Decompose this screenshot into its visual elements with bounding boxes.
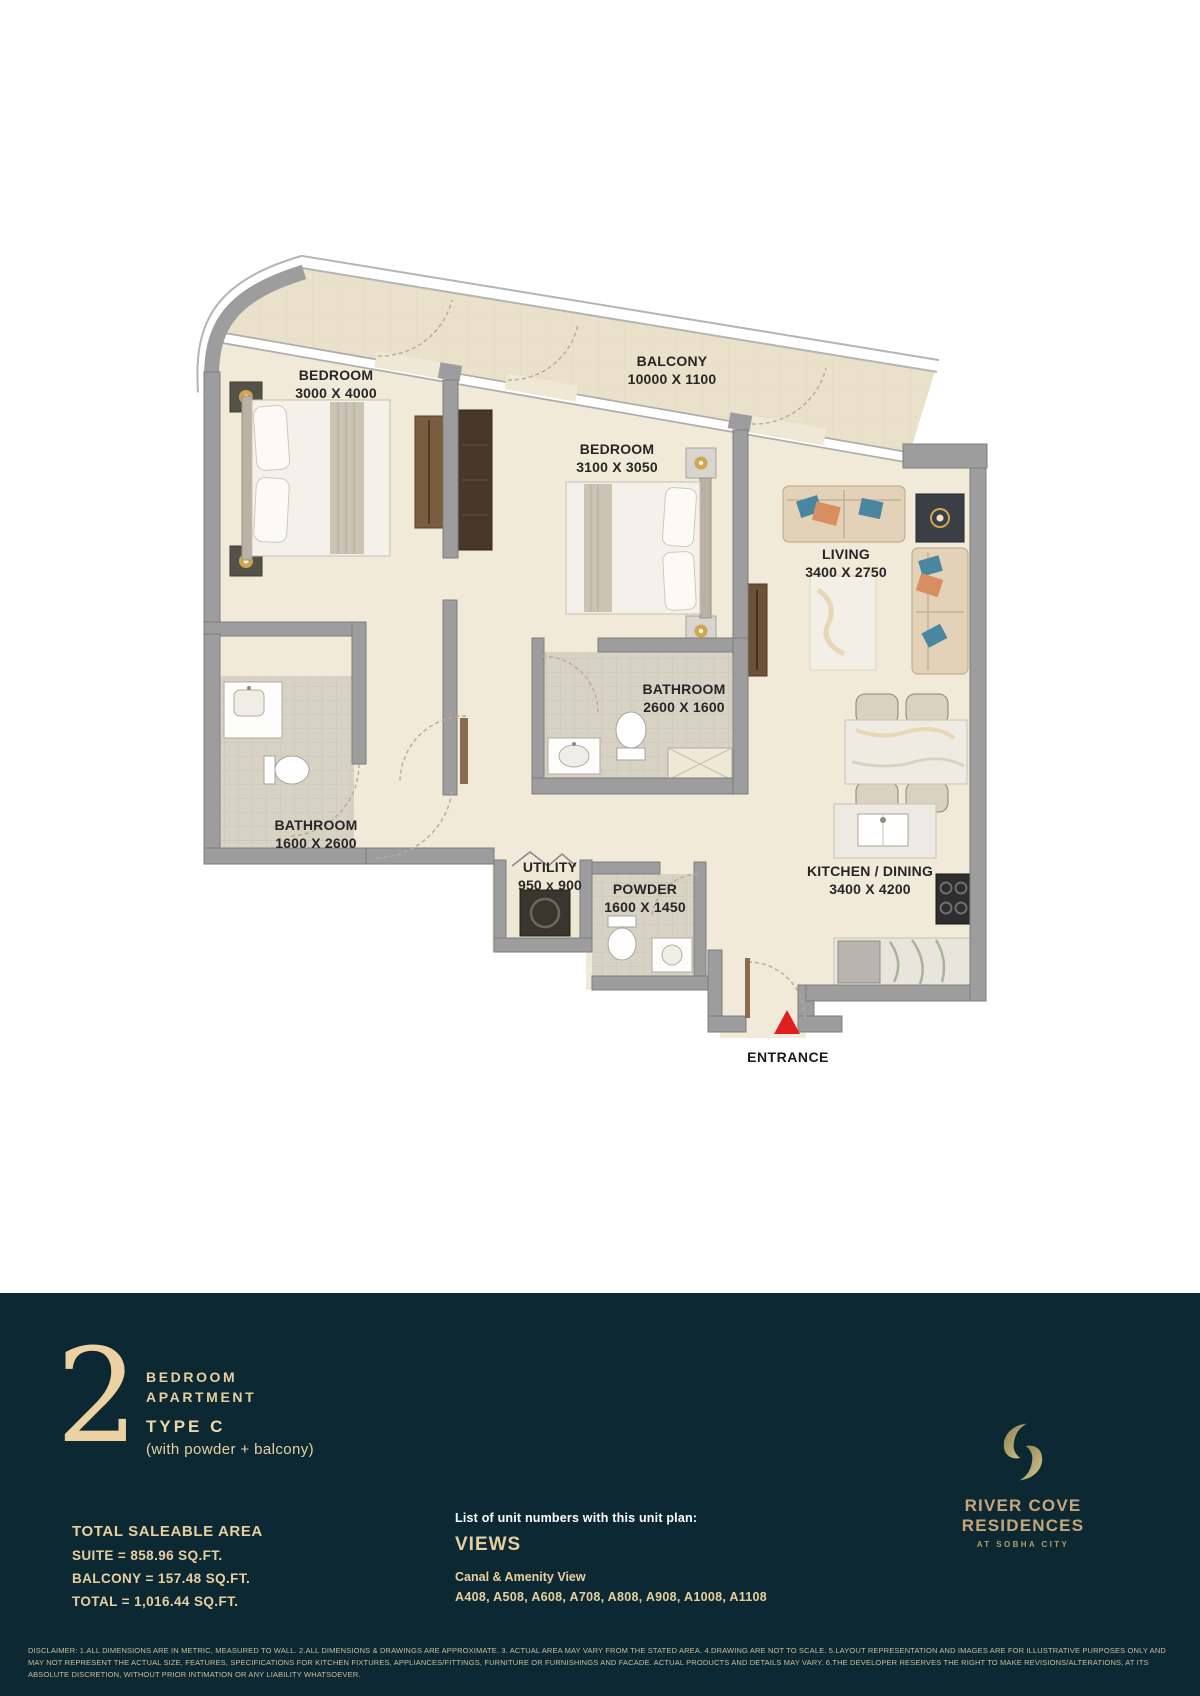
unit-type: BEDROOM APARTMENT [146,1367,256,1408]
brand-name: RIVER COVE RESIDENCES [906,1496,1140,1536]
unit-list: A408, A508, A608, A708, A808, A908, A100… [455,1590,767,1604]
sobha-swirl-icon [997,1421,1049,1483]
brochure-page: BEDROOM 3000 X 4000 BALCONY 10000 X 1100… [0,0,1200,1696]
view-type: Canal & Amenity View [455,1570,767,1584]
entrance-door-leaf [745,958,750,1018]
brand-block: RIVER COVE RESIDENCES AT SOBHA CITY [906,1421,1140,1549]
area-title: TOTAL SALEABLE AREA [72,1523,263,1540]
views-title: VIEWS [455,1534,767,1556]
saleable-area-block: TOTAL SALEABLE AREA SUITE = 858.96 SQ.FT… [72,1523,263,1617]
area-total: TOTAL = 1,016.44 SQ.FT. [72,1594,263,1609]
brand-subname: AT SOBHA CITY [906,1540,1140,1549]
room-label-powder: POWDER 1600 X 1450 [604,880,686,917]
floor-plan-svg [0,0,1200,1293]
room-label-utility: UTILITY 950 x 900 [518,858,582,895]
room-label-bedroom-1: BEDROOM 3000 X 4000 [295,366,377,403]
room-label-bathroom-1: BATHROOM 1600 X 2600 [275,816,358,853]
entrance-label: ENTRANCE [747,1050,829,1064]
unit-numbers-intro: List of unit numbers with this unit plan… [455,1511,767,1525]
bed-1 [230,382,390,576]
footer-panel: 2 BEDROOM APARTMENT TYPE C (with powder … [0,1293,1200,1696]
unit-numbers-block: List of unit numbers with this unit plan… [455,1511,767,1604]
unit-count: 2 [56,1343,139,1450]
room-label-bedroom-2: BEDROOM 3100 X 3050 [576,440,658,477]
room-label-living: LIVING 3400 X 2750 [805,545,887,582]
area-balcony: BALCONY = 157.48 SQ.FT. [72,1571,263,1586]
door-leaf [460,718,468,784]
type-sublabel: (with powder + balcony) [146,1441,314,1458]
area-suite: SUITE = 858.96 SQ.FT. [72,1548,263,1563]
room-label-kitchen-dining: KITCHEN / DINING 3400 X 4200 [807,862,933,899]
room-label-balcony: BALCONY 10000 X 1100 [628,352,717,389]
room-label-bathroom-2: BATHROOM 2600 X 1600 [643,680,726,717]
disclaimer-text: DISCLAIMER: 1.ALL DIMENSIONS ARE IN METR… [28,1645,1178,1681]
type-label: TYPE C [146,1417,225,1437]
